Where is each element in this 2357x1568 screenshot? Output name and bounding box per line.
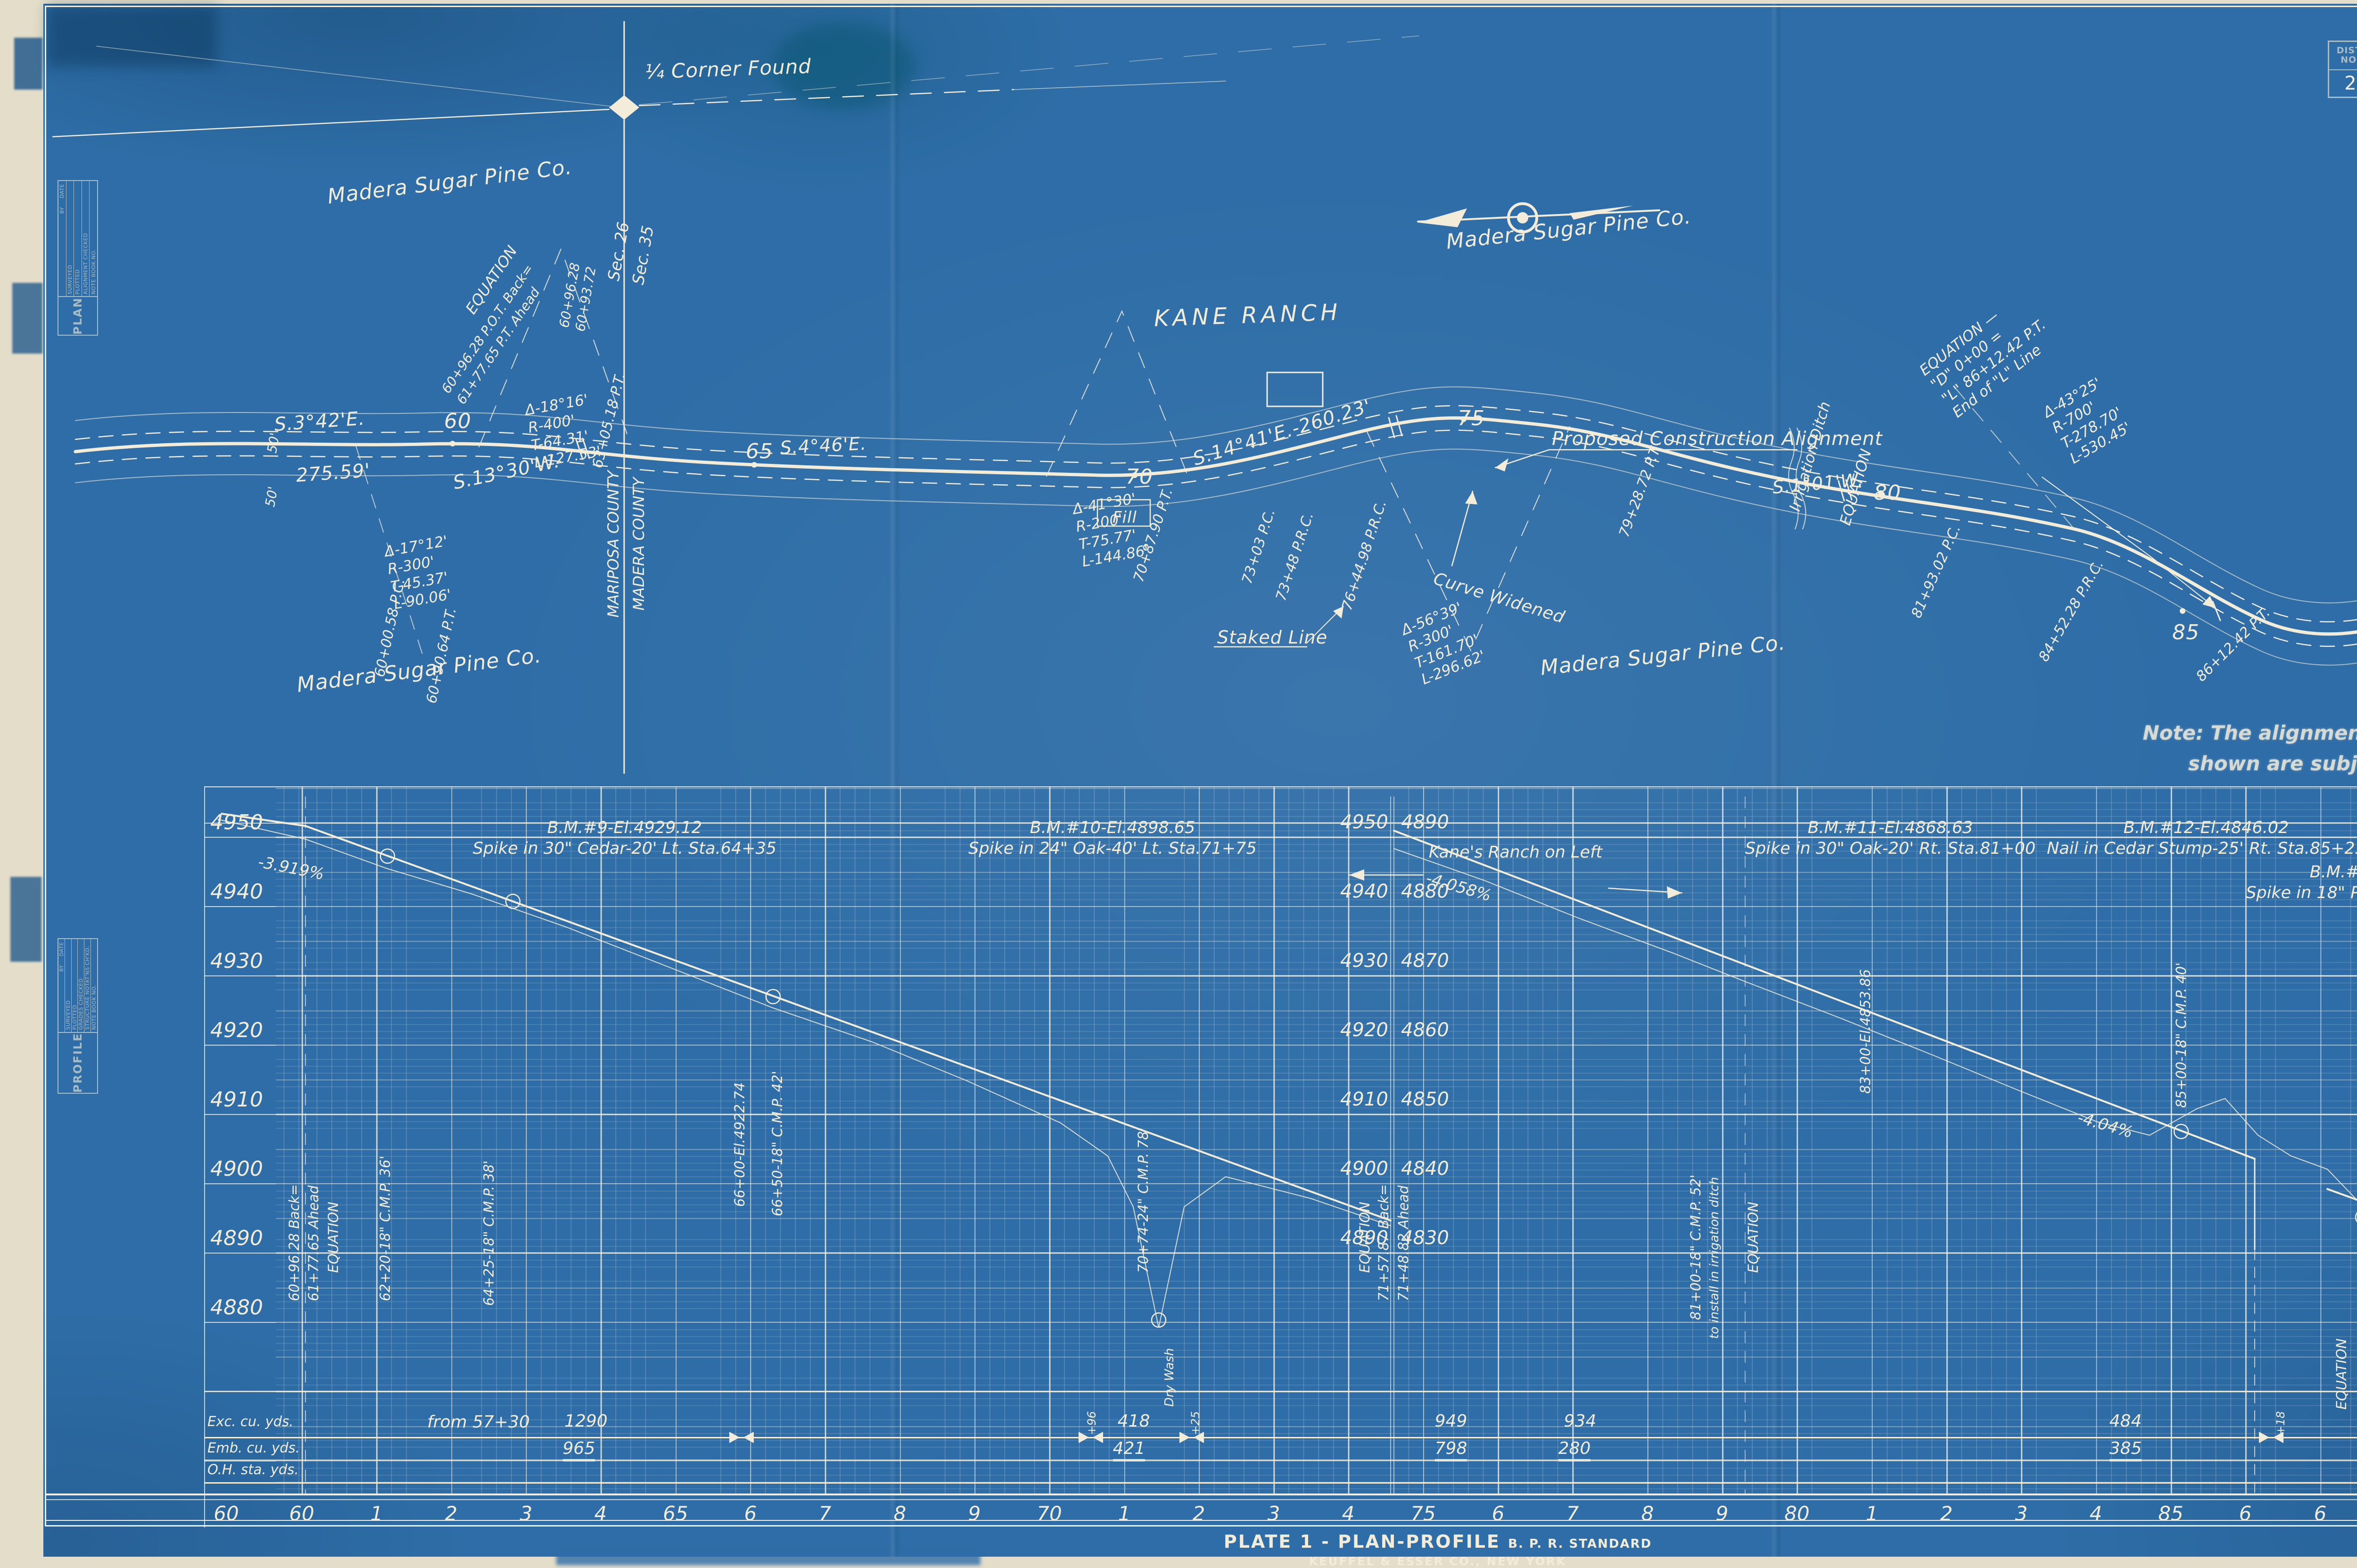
plate-title: PLATE 1 - PLAN-PROFILE B. P. R. STANDARD [1108,1531,1768,1552]
quantity-value: 418 [1082,1411,1186,1431]
quantity-row-label: Exc. cu. yds. [207,1413,294,1429]
profile-vertical-note: +25 [1189,1411,1202,1435]
elevation-label-mid: 4920 [1340,1019,1387,1041]
station-label: 2 [1925,1502,1968,1525]
plan-label: 70 [1126,465,1153,489]
profile-vertical-note: 60+96.28 Back= [286,1184,302,1301]
plan-rotated-note: MADERA COUNTY [630,477,648,611]
maker-line: KEUFFEL & ESSER CO., NEW YORK [1108,1555,1768,1568]
quantity-value-text: 965 [563,1439,595,1461]
quantity-value-text: 934 [1564,1411,1597,1431]
grade-line [2327,1189,2357,1276]
quantity-value: 421 [1077,1439,1181,1458]
elevation-label-left: 4890 [202,1226,263,1250]
station-label: 9 [953,1502,996,1525]
plan-label: Staked Line [1217,627,1327,648]
station-label: 6 [729,1502,772,1525]
profile-vertical-note: 81+00-18" C.M.P. 52' [1688,1174,1704,1320]
benchmark-note: Nail in Cedar Stump-25' Rt. Sta.85+25 [2008,839,2357,858]
quantity-value-text: 798 [1435,1439,1467,1461]
quantity-value-text: from 57+30 [427,1412,530,1432]
plate-title-text: PLATE 1 - PLAN-PROFILE [1224,1531,1500,1552]
sheet-footer: PLATE 1 - PLAN-PROFILE B. P. R. STANDARD… [1108,1531,1768,1568]
quantity-value-text: 280 [1558,1439,1591,1461]
elevation-label-left: 4940 [202,880,263,904]
quantity-value-text: 1290 [564,1411,608,1431]
road-alignment [75,387,2357,665]
station-label: 65 [654,1502,697,1525]
station-label: 6 [1477,1502,1519,1525]
elevation-label-mid: 4900 [1340,1158,1387,1180]
quantity-row-label: Emb. cu. yds. [207,1440,300,1456]
elevation-label-mid: 4830 [1401,1227,1449,1249]
station-label: 7 [1551,1502,1594,1525]
station-label: 3 [1253,1502,1295,1525]
profile-vertical-note: 70+74-24" C.M.P. 78' [1135,1127,1151,1273]
station-label: 1 [1851,1502,1893,1525]
curve-data-block: Δ-18°16'R-400'T-64.31'L-127.53' [524,390,602,472]
benchmark-note: B.M.#12-El.4846.02 [2008,818,2357,837]
station-label: 8 [1626,1502,1669,1525]
kane-ranch-note: Kane's Ranch on Left [1393,843,1638,862]
profile-vertical-note: EQUATION [1745,1202,1761,1273]
station-label: 9 [1701,1502,1743,1525]
profile-vertical-note: 83+00-El.4853.86 [1857,969,1873,1094]
station-label: 75 [1402,1502,1444,1525]
station-label: 2 [430,1502,472,1525]
arrowhead [1667,886,1682,899]
profile-vertical-note: EQUATION [2333,1338,2349,1410]
elevation-label-mid: 4940 [1340,881,1387,902]
quantity-value: 385 [2074,1439,2177,1458]
quantity-value: 72 [2347,1461,2357,1480]
benchmark-note: B.M.#9-El.4929.12 [427,818,823,837]
quarter-corner-diamond [609,95,639,120]
station-label: 4 [1327,1502,1369,1525]
plan-label: 75 [1458,406,1485,430]
blueprint-sheet: { "sheet": { "title_block": { "headers":… [0,0,2357,1563]
profile-vertical-note: to install in irrigation ditch [1707,1177,1722,1339]
elevation-label-mid: 4840 [1401,1158,1449,1180]
plate-standard-text: B. P. R. STANDARD [1508,1537,1652,1551]
plan-label: 65 [746,439,773,463]
station-label: 1 [355,1502,398,1525]
station-label: 6 [2224,1502,2266,1525]
profile-vertical-note: EQUATION [325,1202,341,1273]
elevation-label-mid: 4890 [1401,811,1449,833]
profile-vertical-note: 64+25-18" C.M.P. 38' [481,1160,497,1306]
grade-line [1394,831,2255,1159]
profile-vertical-note: +18 [2274,1411,2287,1435]
profile-vertical-note: Dry Wash [1162,1348,1177,1407]
elevation-label-mid: 4950 [1340,811,1387,833]
quantity-value-text: 421 [1113,1439,1146,1461]
station-label: 60 [205,1502,247,1525]
elevation-label-mid: 4930 [1340,950,1387,972]
section-line-east-dashed [639,90,1014,106]
quantity-value: 1706 [2347,1439,2357,1458]
section-line-east [1014,81,1226,90]
benchmark-note: Spike in 30" Cedar-20' Lt. Sta.64+35 [427,839,823,858]
station-label: 2 [1178,1502,1220,1525]
quantity-value: 798 [1399,1439,1503,1458]
elevation-label-mid: 4860 [1401,1019,1449,1041]
elevation-label-mid: 4890 [1340,1227,1387,1249]
arrowhead [1495,458,1508,471]
station-label: 4 [579,1502,622,1525]
grade-line [305,826,1391,1221]
curve-construction [1047,311,1188,476]
quantity-value-text: 949 [1435,1411,1467,1431]
elevation-label-mid: 4870 [1401,950,1449,972]
quantity-row-label: O.H. sta. yds. [207,1461,299,1477]
quantity-value: from 57+30 [427,1412,530,1432]
section-line-west [53,109,609,137]
station-label: 3 [2000,1502,2043,1525]
elevation-label-mid: 4880 [1401,881,1449,902]
elevation-label-left: 4930 [202,949,263,973]
elevation-label-mid: 4850 [1401,1089,1449,1110]
station-label: 4 [2075,1502,2117,1525]
note-line-2: shown are subject to adjustment. [2140,748,2357,779]
quantity-value-text: 385 [2110,1439,2142,1461]
elevation-label-left: 4880 [202,1296,263,1320]
profile-vertical-note: 66+50-18" C.M.P. 42' [769,1071,785,1216]
kane-ranch-building [1267,372,1323,406]
ground-line [1394,849,2357,1278]
survey-tie-line [97,46,613,107]
benchmark-note: B.M.#13-El.4842.55 [2194,863,2357,882]
elevation-label-left: 4900 [202,1157,263,1181]
station-label: 8 [879,1502,921,1525]
bowtie-mark [729,1432,2283,1443]
station-label: 85 [2150,1502,2192,1525]
curve-data-block: Δ-41°30'R-200'T-75.77'L-144.86' [1071,489,1150,571]
plan-rotated-note: MARIPOSA COUNTY [604,470,622,618]
elevation-label-mid: 4910 [1340,1089,1387,1110]
arrowhead [1349,869,1364,881]
quantity-value: 949 [1399,1411,1503,1431]
station-label: 7 [804,1502,846,1525]
profile-vertical-note: 66+00-El.4922.74 [732,1082,748,1207]
plan-label: Proposed Construction Alignment [1552,428,1883,450]
elevation-label-left: 4950 [202,810,263,834]
note-line-1: Note: The alignment and grade as hereon [2140,718,2357,748]
station-label: 1 [1103,1502,1146,1525]
benchmark-note: Spike in 24" Oak-40' Lt. Sta.71+75 [915,839,1310,858]
quantity-value: 965 [527,1439,631,1458]
quantity-value: 484 [2074,1411,2177,1431]
plan-label: 85 [2172,620,2200,644]
profile-vertical-note: 61+77.65 Ahead [305,1185,321,1301]
station-label: 80 [1776,1502,1818,1525]
quantity-value: 2048 [2350,1411,2357,1431]
adjustment-note: Note: The alignment and grade as hereon … [2140,718,2357,779]
arrowhead [1465,491,1477,504]
benchmark-note: Spike in 18" Pine-40' Rt. Sta.87+55 [2194,883,2357,902]
plan-label: 80 [1874,481,1901,505]
station-label: 6 [2299,1502,2341,1525]
plan-label: 60 [444,409,471,433]
station-label: 70 [1028,1502,1071,1525]
quantity-value: 934 [1528,1411,1632,1431]
station-label: 3 [505,1502,547,1525]
station-label: 60 [280,1502,323,1525]
drawing-layer [0,0,2357,1563]
profile-vertical-note: 85+00-18" C.M.P. 40' [2173,962,2189,1108]
quantity-value-text: 484 [2110,1411,2142,1431]
quantity-value-text: 418 [1118,1411,1150,1431]
quantity-value: 280 [1523,1439,1626,1458]
quantity-value: 1290 [534,1411,638,1431]
profile-lines [218,797,2357,1494]
elevation-label-left: 4910 [202,1088,263,1112]
benchmark-note: B.M.#10-El.4898.65 [915,818,1310,837]
elevation-label-left: 4920 [202,1018,263,1042]
ground-line [218,819,1391,1328]
profile-vertical-note: 62+20-18" C.M.P. 36' [377,1155,393,1301]
curve-data-block: Δ-17°12'R-300'T-45.37'L-90.06' [383,533,459,614]
